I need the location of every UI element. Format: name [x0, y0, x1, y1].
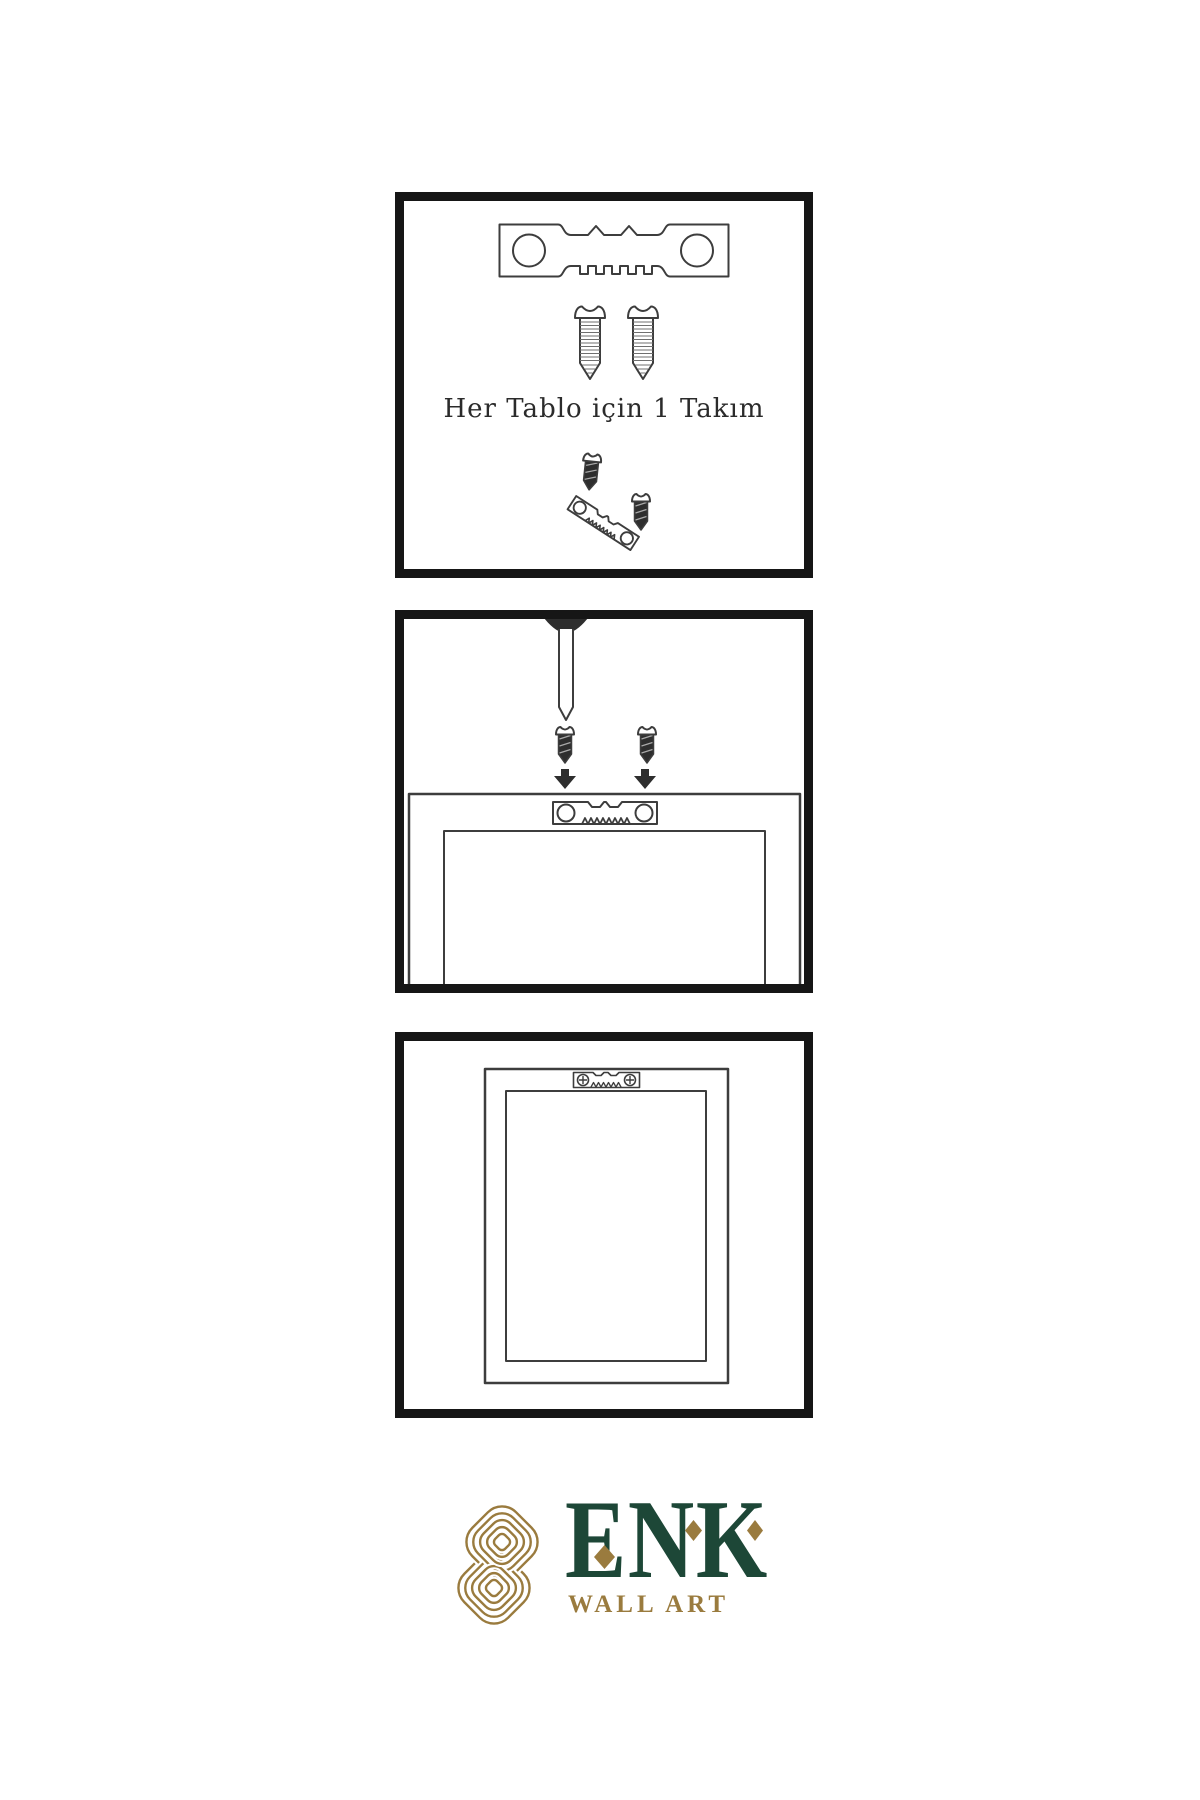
instruction-sheet: Her Tablo için 1 Takım: [0, 0, 1200, 1800]
instruction-panel-1: Her Tablo için 1 Takım: [395, 192, 813, 578]
mounted-hanger-icon: [553, 802, 657, 824]
mounted-hanger-icon: [574, 1073, 640, 1088]
nail-icon: [544, 619, 588, 720]
framed-art-icon: [485, 1069, 728, 1383]
brand-tagline: WALL ART: [568, 1591, 729, 1619]
sawtooth-hanger-icon: [500, 225, 729, 277]
tilted-hanger-icon: [568, 496, 639, 550]
screw-icon: [628, 307, 658, 380]
phillips-screw-icon: [578, 1075, 589, 1086]
down-arrow-icon: [554, 769, 576, 789]
kit-caption: Her Tablo için 1 Takım: [404, 394, 804, 424]
finished-frame-illustration: [404, 1041, 804, 1409]
phillips-screw-icon: [625, 1075, 636, 1086]
instruction-panel-2: [395, 610, 813, 993]
mounting-illustration: [404, 619, 804, 984]
screw-icon: [556, 727, 574, 763]
brand-logo: ENK WALL ART: [442, 1498, 772, 1638]
hardware-kit-illustration: [404, 201, 804, 569]
instruction-panel-3: [395, 1032, 813, 1418]
knot-logo-icon: [442, 1498, 558, 1630]
brand-name: ENK: [565, 1484, 769, 1596]
down-arrow-icon: [634, 769, 656, 789]
screw-icon: [638, 727, 656, 763]
screw-icon: [580, 453, 602, 491]
screw-icon: [632, 494, 650, 530]
screw-icon: [575, 307, 605, 380]
